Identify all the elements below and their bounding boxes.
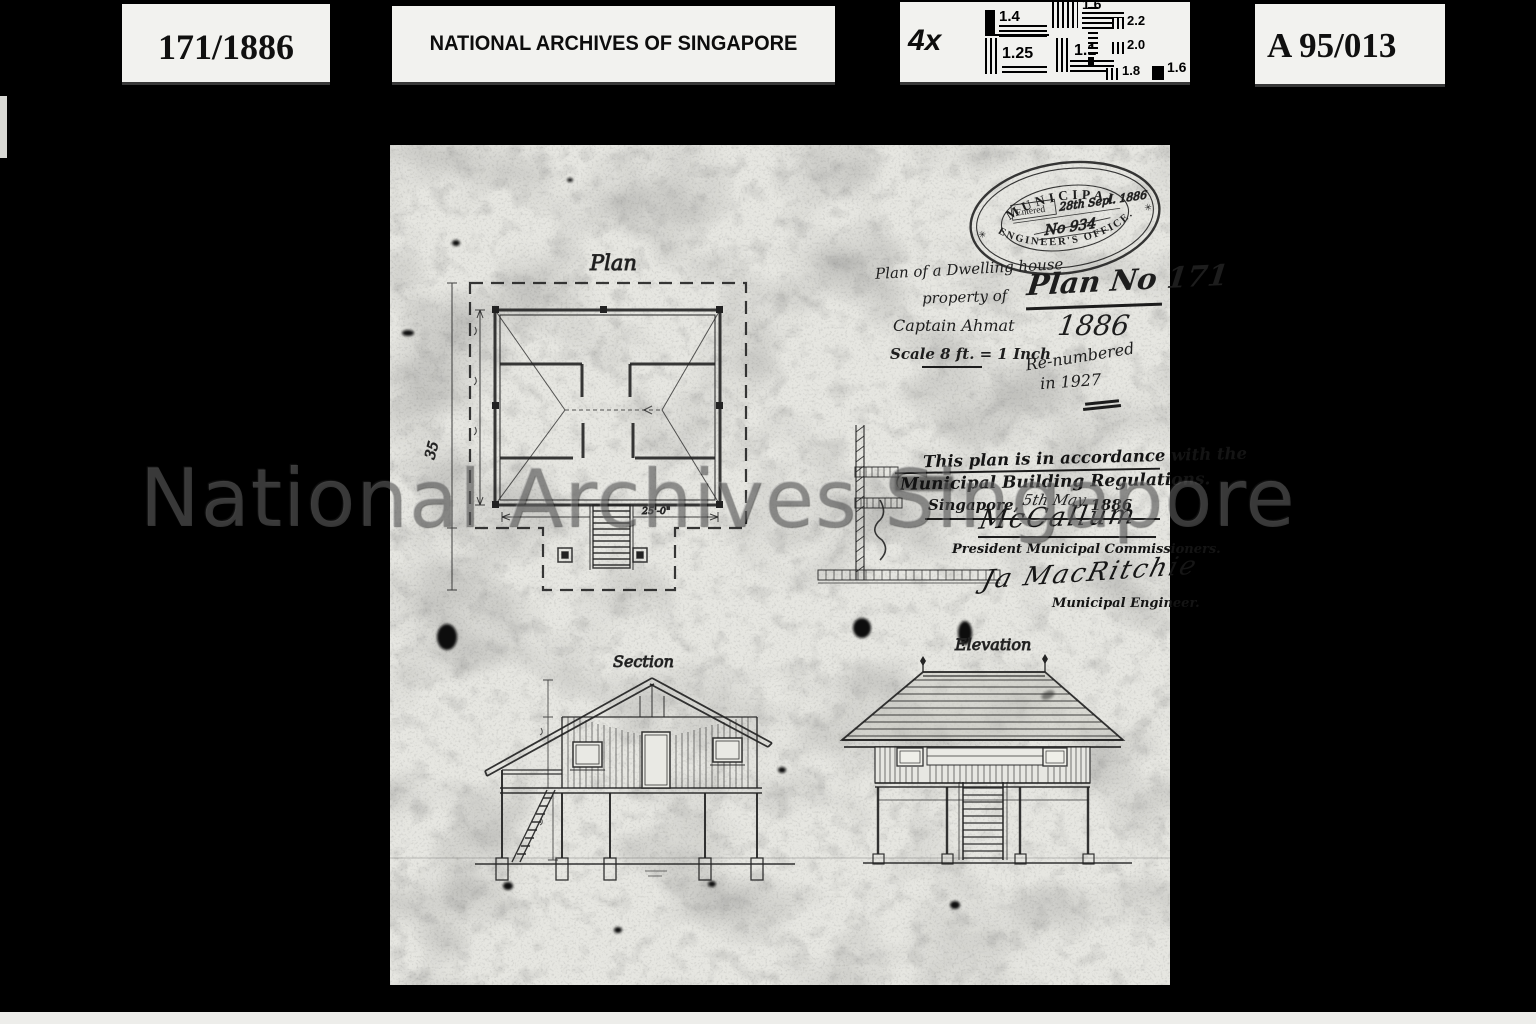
elevation-roof <box>842 654 1123 747</box>
film-sprocket-tab <box>330 0 392 78</box>
elevation-finials <box>923 656 1045 672</box>
film-edge-chip <box>0 96 7 158</box>
section-title: Section <box>613 652 674 671</box>
film-sprocket-tab <box>1190 0 1255 80</box>
reel-number-text: 171/1886 <box>122 26 330 68</box>
floor-plan-drawing: Plan <box>420 240 780 600</box>
certification-block: This plan is in accordance with the Muni… <box>810 420 1190 635</box>
elevation-title: Elevation <box>954 635 1031 654</box>
signature-flourish <box>875 500 886 560</box>
plan-porch-posts <box>558 548 647 562</box>
stamp-star-right: ✳ <box>1144 202 1153 213</box>
reference-label: A 95/013 <box>1255 4 1445 84</box>
stamp-star-left: ✳ <box>978 229 987 240</box>
test-micro-column <box>1088 7 1100 69</box>
plan-roof-outline <box>470 283 746 590</box>
plan-title: Plan <box>589 251 637 275</box>
section-floor-beam <box>500 788 762 793</box>
film-bottom-strip <box>0 1012 1536 1024</box>
note-renumbered-2: in 1927 <box>1039 370 1101 393</box>
section-footings <box>496 858 763 880</box>
test-right-group: 2.2 2.0 1.8 1.6 <box>1112 10 1190 80</box>
ink-smudge <box>895 476 953 491</box>
elevation-wall <box>875 747 1090 783</box>
note-renumbered-1: Re-numbered <box>1024 339 1135 375</box>
elevation-floor-beam <box>875 783 1090 787</box>
elevation-staircase <box>959 782 1007 860</box>
magnification-text: 4x <box>908 24 941 58</box>
test-block-1-25: 1.25 <box>985 38 1061 78</box>
archive-title-label: NATIONAL ARCHIVES OF SINGAPORE <box>392 6 835 82</box>
plan-margin-note: 35 <box>422 440 442 461</box>
plan-width-dimension: 25'-0" <box>641 506 670 517</box>
note-line3: Captain Ahmat <box>893 316 1015 335</box>
plan-hip-lines <box>495 310 720 505</box>
elevation-drawing: Elevation <box>830 630 1140 880</box>
reel-number-label: 171/1886 <box>122 4 330 82</box>
reference-text: A 95/013 <box>1267 26 1396 66</box>
note-year: 1886 <box>1056 309 1132 342</box>
film-sprocket-tab <box>835 0 900 76</box>
plan-staircase <box>590 505 633 570</box>
resolution-test-label: 4x 1.4 1.6 1.25 1.1 <box>900 2 1190 82</box>
microfilm-frame: 171/1886 NATIONAL ARCHIVES OF SINGAPORE … <box>0 0 1536 1024</box>
section-ladder <box>512 790 555 862</box>
handwritten-notes: Plan of a Dwelling house property of Cap… <box>860 255 1180 420</box>
archive-title-text: NATIONAL ARCHIVES OF SINGAPORE <box>403 32 824 56</box>
signature-president: McCallum <box>977 499 1139 535</box>
section-drawing: Section <box>470 640 800 890</box>
note-line2: property of <box>922 287 1008 308</box>
plan-wall-posts <box>492 306 723 508</box>
title-engineer: Municipal Engineer. <box>1052 596 1200 611</box>
section-door <box>642 732 670 788</box>
